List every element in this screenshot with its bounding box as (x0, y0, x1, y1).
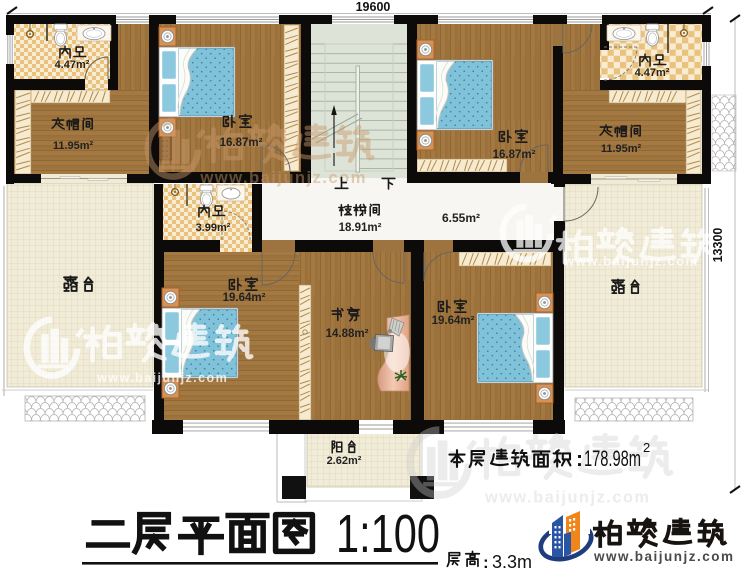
svg-text:16.87m²: 16.87m² (220, 137, 263, 149)
svg-text:4.47m²: 4.47m² (635, 67, 670, 79)
svg-text:www.baijunjz.com: www.baijunjz.com (96, 371, 228, 385)
svg-text:1:100: 1:100 (336, 504, 440, 564)
svg-text::: : (483, 553, 489, 572)
svg-text:2: 2 (643, 440, 650, 455)
svg-text:14.88m²: 14.88m² (326, 328, 369, 340)
svg-text:19.64m²: 19.64m² (432, 315, 475, 327)
svg-text:www.baijunjz.com: www.baijunjz.com (563, 254, 699, 269)
svg-text:4.47m²: 4.47m² (55, 59, 90, 71)
svg-text:www.baijunjz.com: www.baijunjz.com (593, 549, 735, 564)
svg-text:13300: 13300 (711, 228, 725, 263)
svg-text:3.99m²: 3.99m² (196, 222, 231, 234)
svg-text:3.3m: 3.3m (492, 552, 532, 572)
svg-text:11.95m²: 11.95m² (601, 143, 642, 155)
svg-text:16.87m²: 16.87m² (493, 149, 536, 161)
svg-text:19600: 19600 (356, 0, 391, 14)
svg-text:6.55m²: 6.55m² (442, 211, 480, 225)
svg-text:178.98m: 178.98m (584, 446, 641, 471)
svg-text:2.62m²: 2.62m² (327, 455, 362, 467)
svg-text:11.95m²: 11.95m² (53, 140, 94, 152)
svg-text:www.baijunjz.com: www.baijunjz.com (484, 489, 650, 507)
svg-text::: : (576, 448, 583, 471)
svg-text:18.91m²: 18.91m² (339, 222, 382, 234)
svg-text:19.64m²: 19.64m² (223, 292, 266, 304)
